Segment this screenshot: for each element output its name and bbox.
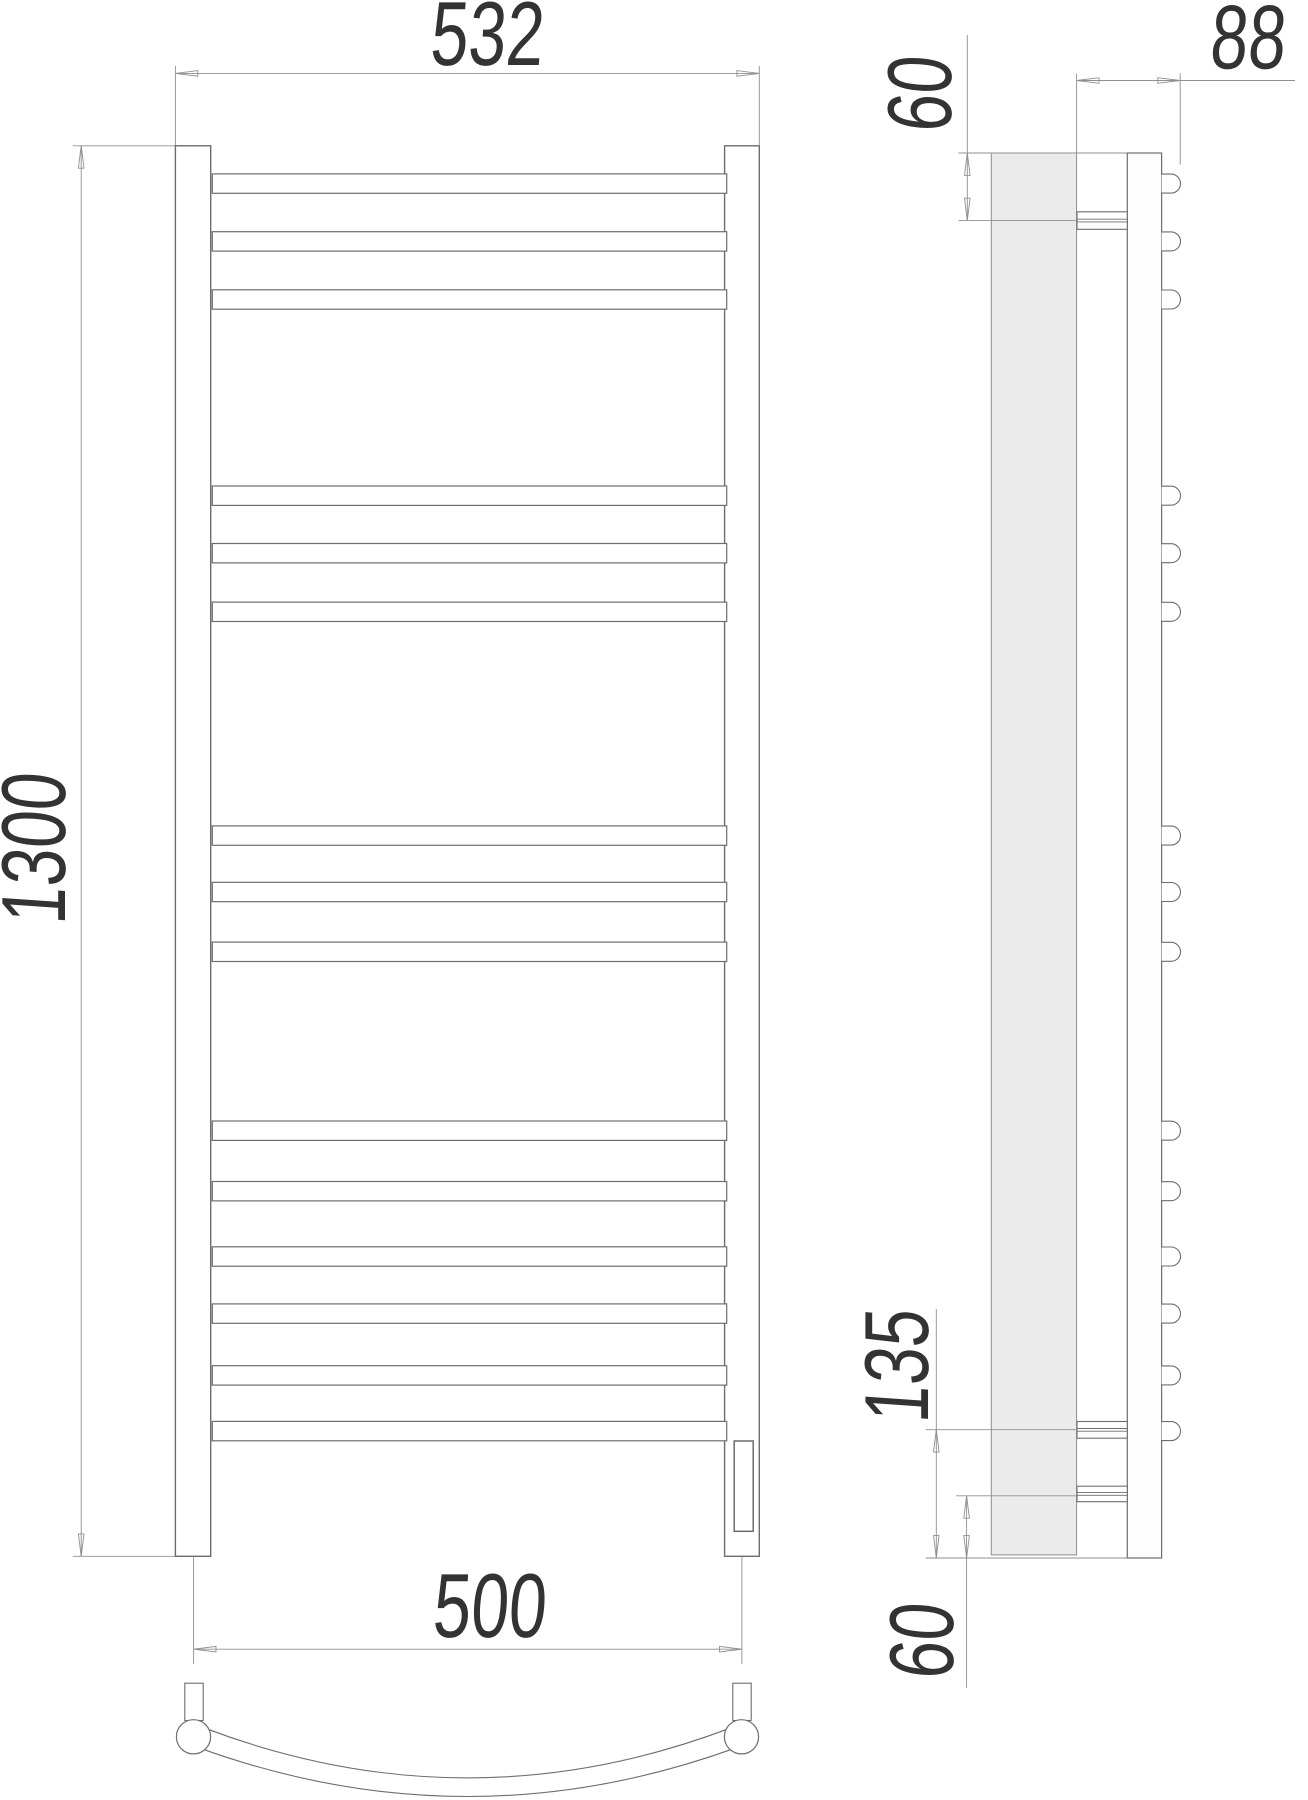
svg-text:135: 135 <box>846 1305 948 1425</box>
svg-text:500: 500 <box>430 1555 550 1657</box>
svg-text:88: 88 <box>1207 0 1290 89</box>
svg-text:60: 60 <box>869 52 971 135</box>
svg-text:1300: 1300 <box>0 769 85 927</box>
svg-text:532: 532 <box>428 0 548 85</box>
svg-text:60: 60 <box>871 1599 973 1682</box>
